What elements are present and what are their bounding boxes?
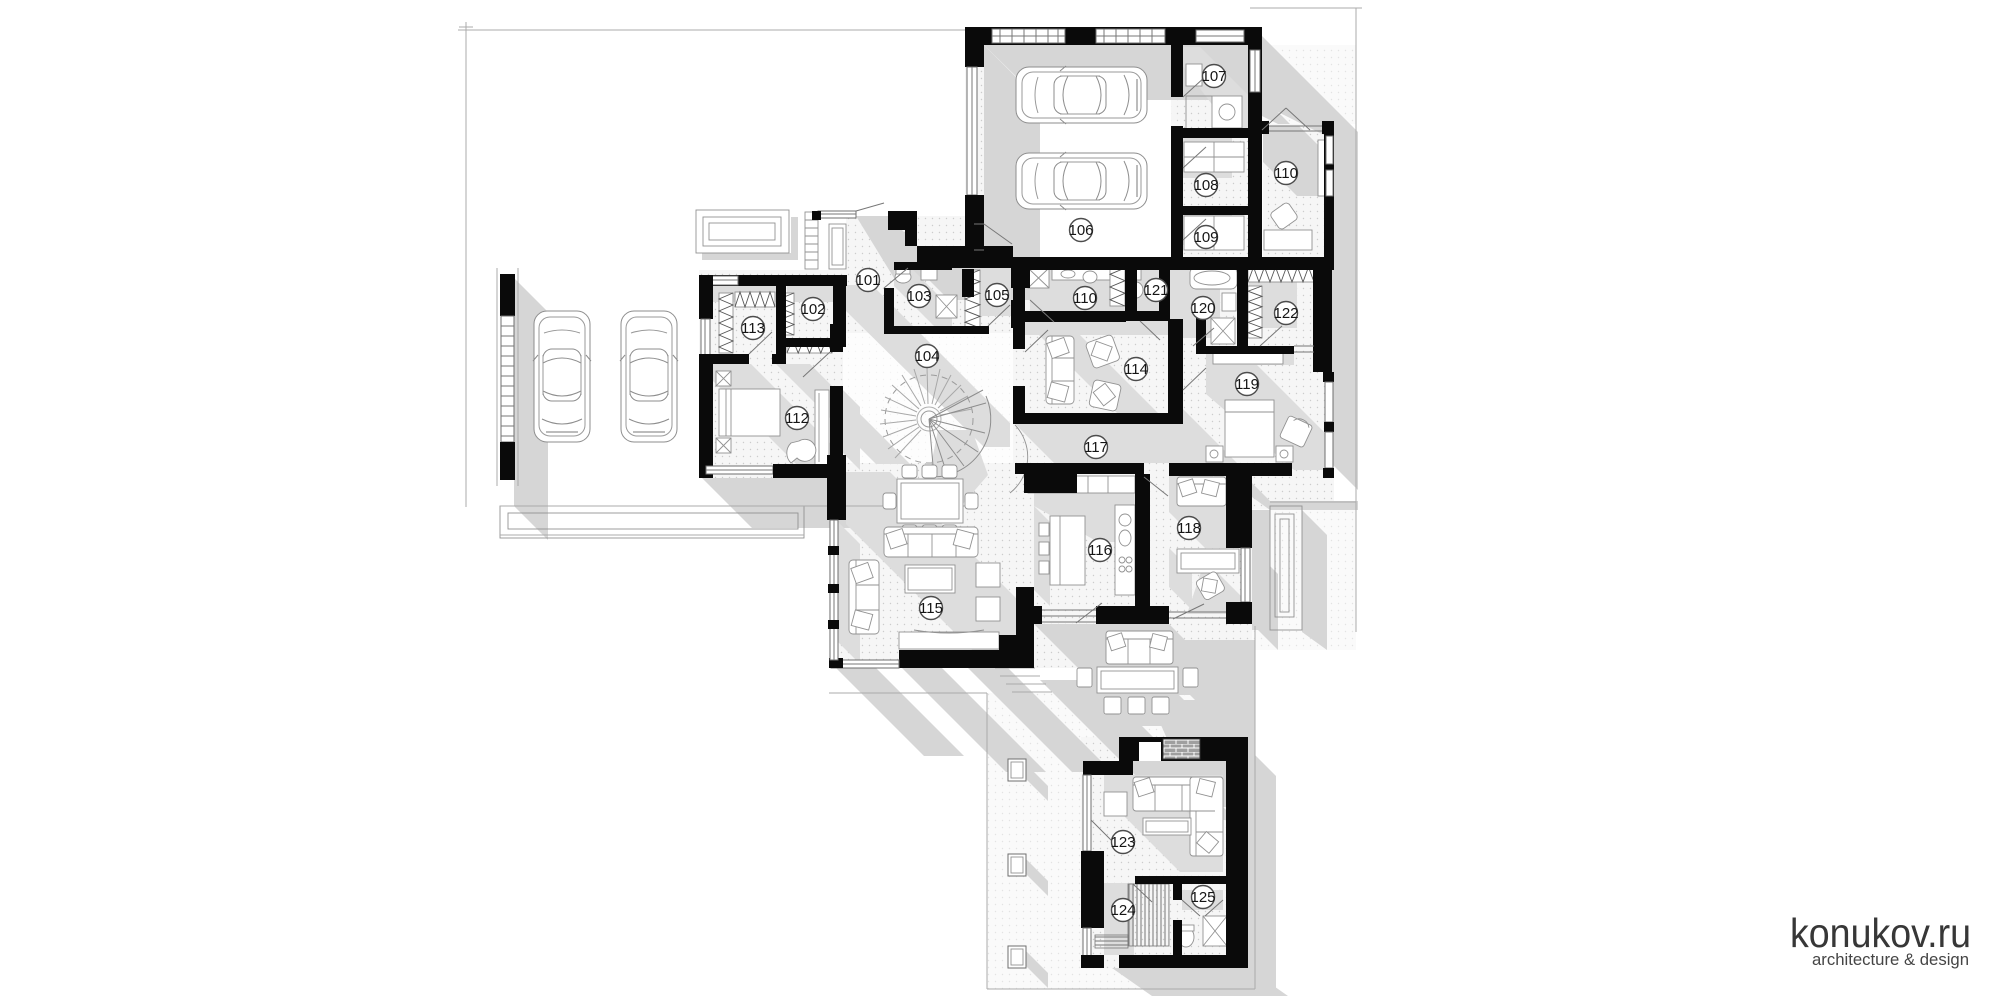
svg-text:105: 105 xyxy=(984,287,1009,304)
svg-text:103: 103 xyxy=(906,288,931,305)
svg-text:112: 112 xyxy=(785,410,809,427)
svg-text:117: 117 xyxy=(1084,439,1108,456)
svg-text:124: 124 xyxy=(1110,902,1135,919)
svg-text:115: 115 xyxy=(919,600,943,617)
svg-text:107: 107 xyxy=(1201,68,1226,85)
svg-text:108: 108 xyxy=(1193,177,1218,194)
svg-text:120: 120 xyxy=(1190,300,1215,317)
svg-text:110: 110 xyxy=(1274,165,1298,182)
svg-text:119: 119 xyxy=(1235,376,1259,393)
svg-text:104: 104 xyxy=(914,348,939,365)
svg-text:118: 118 xyxy=(1177,520,1201,537)
svg-text:106: 106 xyxy=(1068,222,1093,239)
svg-text:architecture & design: architecture & design xyxy=(1812,950,1969,969)
svg-text:125: 125 xyxy=(1190,889,1215,906)
svg-text:102: 102 xyxy=(800,301,825,318)
svg-text:122: 122 xyxy=(1273,305,1298,322)
svg-text:113: 113 xyxy=(741,320,765,337)
svg-text:110: 110 xyxy=(1073,290,1097,307)
svg-text:114: 114 xyxy=(1124,361,1148,378)
svg-text:123: 123 xyxy=(1110,834,1135,851)
svg-text:121: 121 xyxy=(1143,282,1168,299)
svg-text:116: 116 xyxy=(1088,542,1112,559)
svg-text:109: 109 xyxy=(1193,229,1218,246)
svg-text:101: 101 xyxy=(855,272,880,289)
